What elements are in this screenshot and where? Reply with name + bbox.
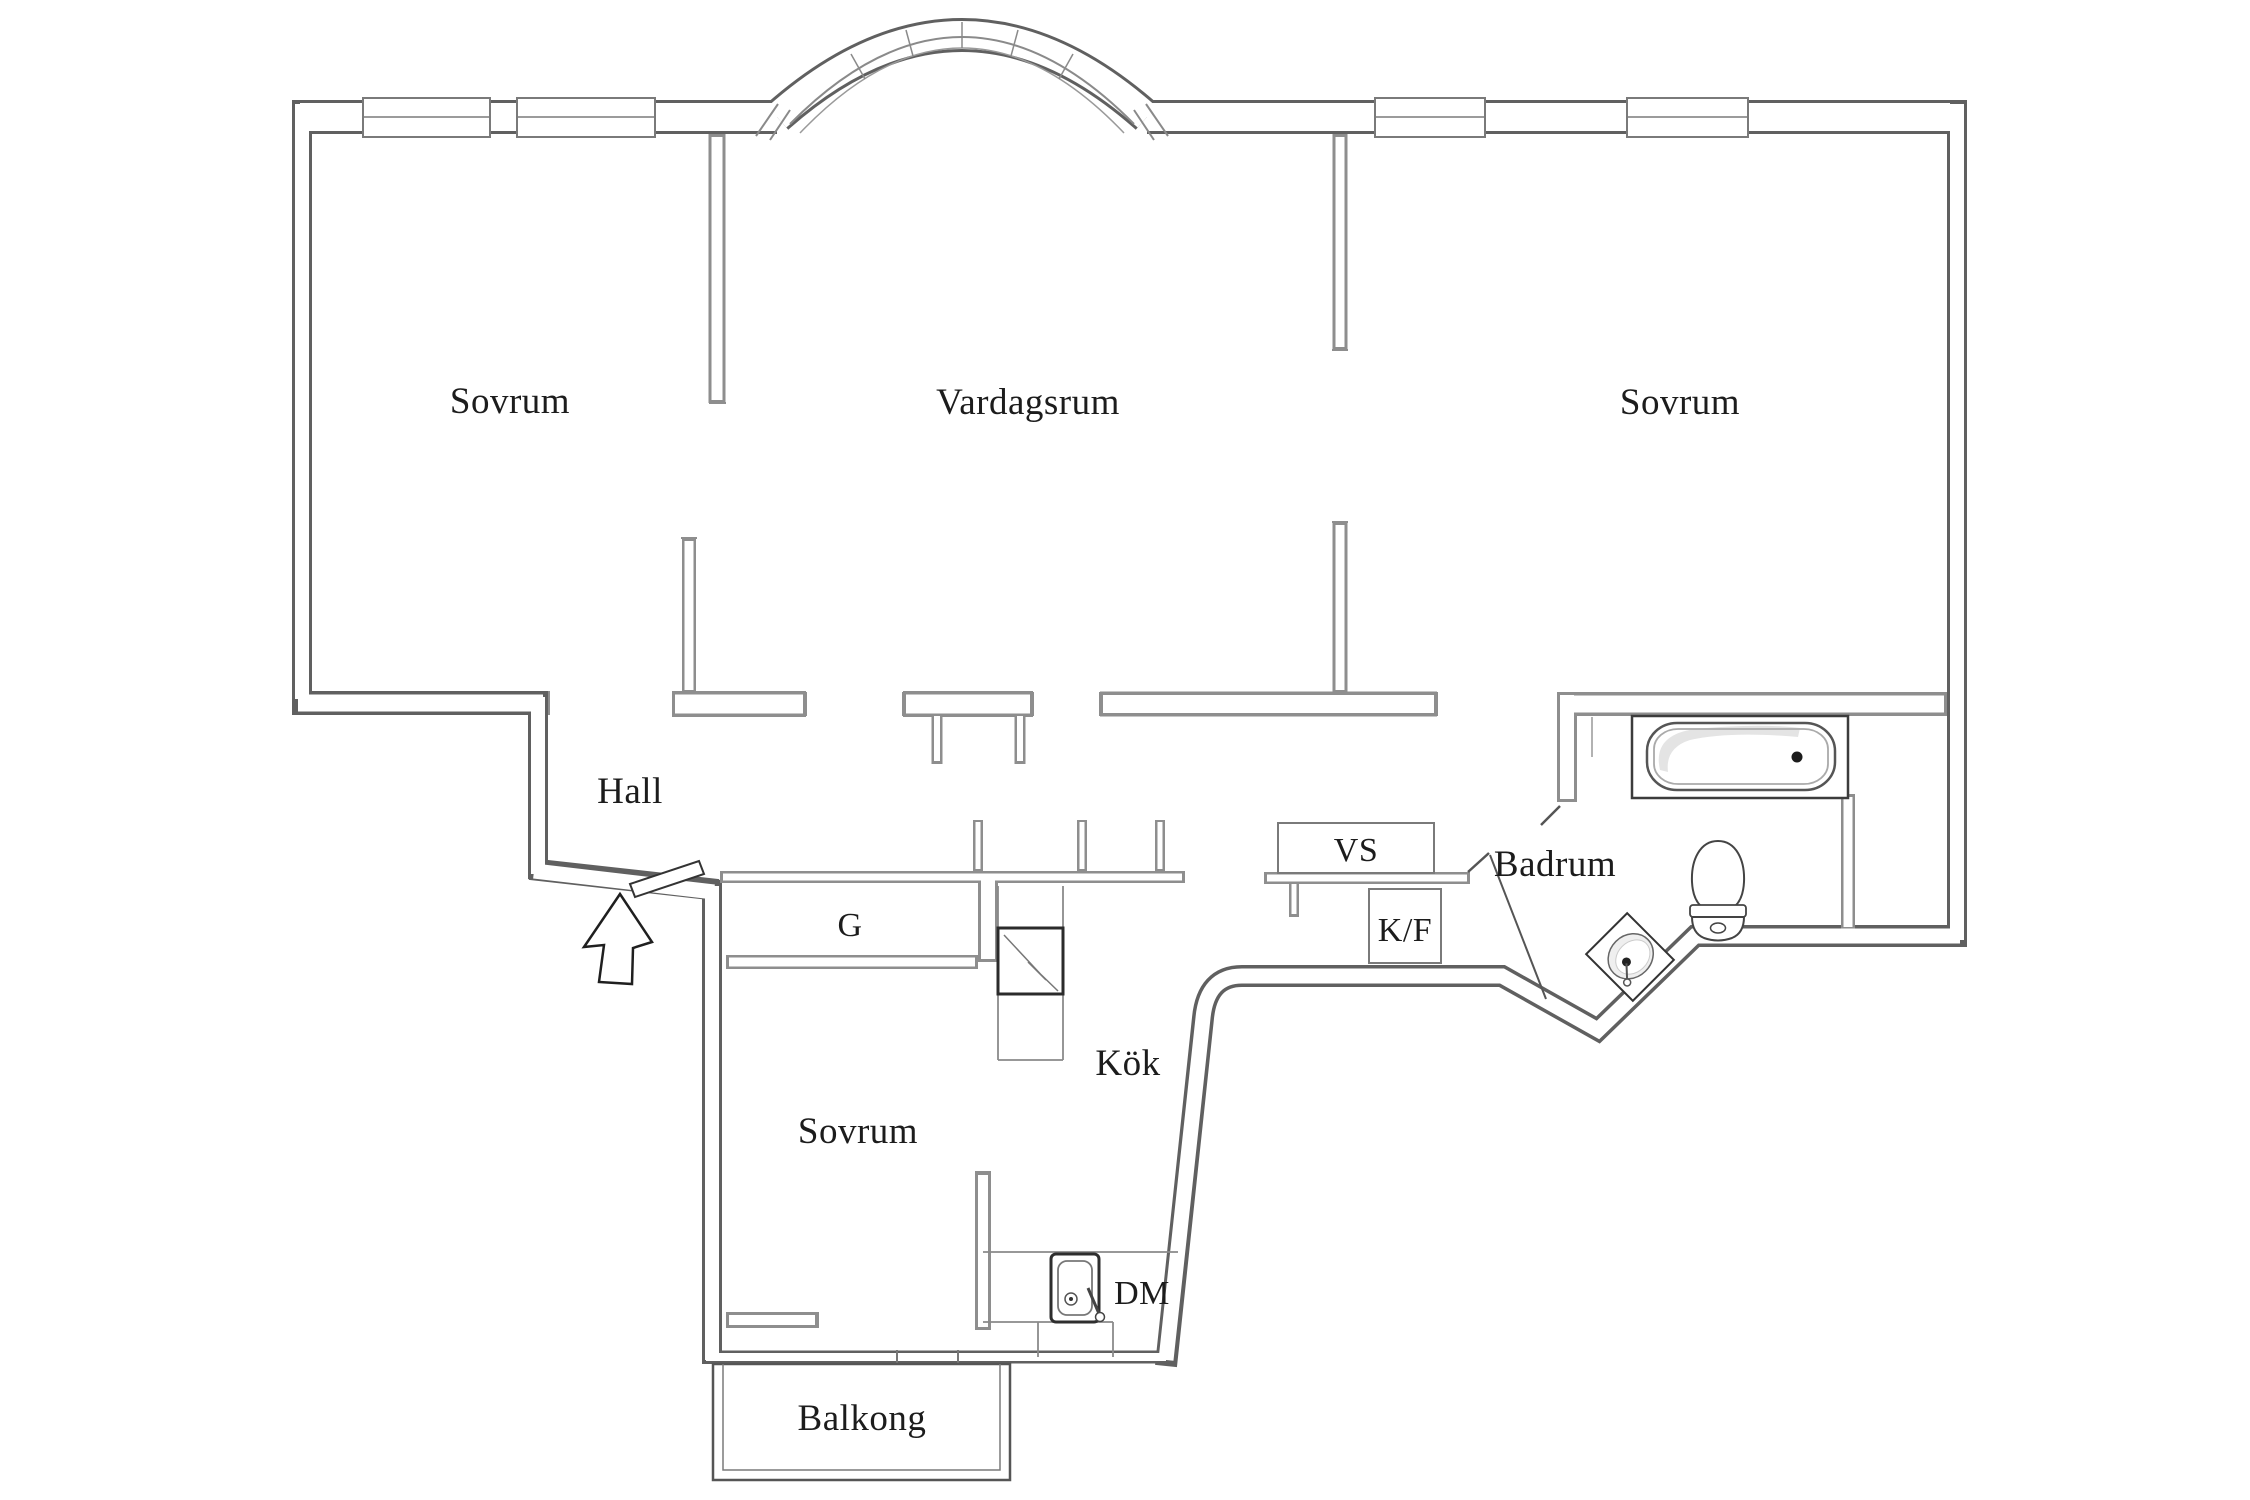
floor-plan: Sovrum Vardagsrum Sovrum Hall Kök Badrum… xyxy=(0,0,2250,1500)
electric-panel-icon xyxy=(998,928,1063,994)
floor-plan-drawing: Sovrum Vardagsrum Sovrum Hall Kök Badrum… xyxy=(0,0,2250,1500)
kitchen-sink-icon xyxy=(1051,1254,1105,1322)
room-label-bathroom: Badrum xyxy=(1494,844,1616,885)
room-label-bedroom-bottom: Sovrum xyxy=(798,1111,918,1152)
label-fridge-freezer: K/F xyxy=(1378,912,1432,949)
wall-end-caps xyxy=(549,350,1437,1328)
label-vs-unit: VS xyxy=(1334,832,1378,869)
bathtub-icon xyxy=(1632,716,1848,798)
room-label-balcony: Balkong xyxy=(798,1398,927,1439)
window xyxy=(517,98,655,137)
washbasin-icon xyxy=(1586,913,1674,1001)
window xyxy=(1627,98,1748,137)
room-label-bedroom-top-right: Sovrum xyxy=(1620,382,1740,423)
room-label-kitchen: Kök xyxy=(1095,1043,1160,1084)
room-label-living-room: Vardagsrum xyxy=(936,382,1120,423)
toilet-icon xyxy=(1690,841,1746,941)
entrance-arrow-icon xyxy=(584,894,652,984)
window xyxy=(363,98,490,137)
detail-lines xyxy=(897,717,1592,1365)
window xyxy=(1375,98,1485,137)
room-label-hall: Hall xyxy=(597,771,663,812)
label-wardrobe: G xyxy=(837,907,862,944)
room-label-bedroom-top-left: Sovrum xyxy=(450,381,570,422)
label-dishwasher: DM xyxy=(1114,1275,1170,1312)
